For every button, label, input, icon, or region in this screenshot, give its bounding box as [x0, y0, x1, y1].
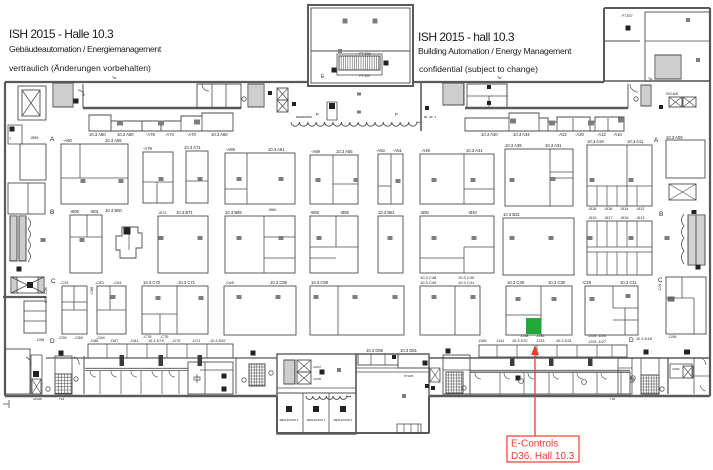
svg-text:-C83: -C83 [95, 280, 104, 285]
svg-text:REFLEXION 2: REFLEXION 2 [307, 418, 326, 422]
svg-text:A: A [654, 137, 659, 144]
svg-text:-A20: -A20 [575, 132, 585, 137]
svg-text:10.3 A80: 10.3 A80 [89, 132, 106, 137]
svg-text:A1007: A1007 [313, 365, 322, 369]
svg-text:-B17: -B17 [604, 215, 613, 220]
svg-text:-D86: -D86 [90, 338, 98, 343]
svg-text:10.3 B51: 10.3 B51 [378, 210, 395, 215]
svg-text:-B72: -B72 [158, 210, 167, 215]
svg-text:-D65: -D65 [478, 338, 486, 343]
svg-text:PT-E05: PT-E05 [404, 374, 414, 378]
svg-text:-D33: -D33 [536, 338, 544, 343]
svg-text:10.3 A09: 10.3 A09 [666, 135, 683, 140]
svg-text:10.3 B50: 10.3 B50 [105, 208, 122, 213]
svg-text:-A59: -A59 [311, 149, 321, 154]
svg-text:10.3 B71: 10.3 B71 [176, 210, 193, 215]
svg-text:-A60: -A60 [63, 138, 73, 143]
svg-text:vertraulich (Änderungen vorbeh: vertraulich (Änderungen vorbehalten) [9, 63, 151, 73]
svg-text:10.3 A31: 10.3 A31 [545, 143, 562, 148]
svg-text:-D38: -D38 [520, 333, 528, 338]
svg-text:-C81: -C81 [113, 280, 122, 285]
svg-text:10.3 C11: 10.3 C11 [620, 280, 637, 285]
svg-text:B: B [659, 211, 663, 218]
svg-text:P: P [316, 112, 319, 117]
svg-text:-C86: -C86 [90, 287, 94, 295]
svg-text:-C91: -C91 [60, 280, 69, 285]
svg-text:-D29 -D27: -D29 -D27 [588, 339, 606, 344]
svg-text:-B05: -B05 [70, 209, 80, 214]
svg-text:PT-E07: PT-E07 [359, 74, 370, 78]
svg-text:-A74: -A74 [165, 132, 175, 137]
svg-text:Tw: Tw [497, 76, 502, 80]
svg-text:-C90: -C90 [58, 335, 67, 340]
svg-text:-D41: -D41 [496, 338, 504, 343]
svg-text:10.3 C30: 10.3 C30 [548, 280, 566, 285]
svg-text:C: C [51, 278, 56, 285]
svg-text:Tw: Tw [112, 76, 117, 80]
svg-text:10.3 A39: 10.3 A39 [505, 143, 522, 148]
svg-text:P: P [395, 112, 398, 117]
svg-text:-B14: -B14 [620, 206, 629, 211]
svg-text:10.3 C38: 10.3 C38 [507, 280, 525, 285]
svg-text:-A69: -A69 [226, 147, 236, 152]
svg-text:10.3 C71: 10.3 C71 [178, 280, 196, 285]
svg-text:-B15: -B15 [620, 215, 629, 220]
svg-text:-A10: -A10 [613, 132, 623, 137]
svg-text:-D36: -D36 [536, 333, 544, 338]
svg-text:10.3 D31: 10.3 D31 [556, 338, 572, 343]
svg-text:REFLEXION 1: REFLEXION 1 [334, 418, 353, 422]
svg-text:Tw: Tw [648, 77, 653, 81]
svg-text:-C06: -C06 [658, 284, 662, 291]
svg-text:B: B [50, 209, 54, 216]
svg-text:A: A [50, 136, 55, 143]
svg-text:-A12: -A12 [597, 132, 607, 137]
svg-text:10.3 A19: 10.3 A19 [587, 139, 604, 144]
svg-text:-A22: -A22 [558, 132, 568, 137]
svg-text:10.3 A61: 10.3 A61 [268, 147, 285, 152]
svg-text:10.3 A55: 10.3 A55 [336, 149, 353, 154]
svg-text:A1098: A1098 [33, 397, 42, 401]
svg-text:-C68: -C68 [225, 280, 234, 285]
svg-text:PT-E02: PT-E02 [359, 52, 370, 56]
svg-text:-D98: -D98 [36, 338, 44, 342]
svg-text:-B01: -B01 [90, 209, 100, 214]
svg-text:-B95: -B95 [30, 135, 39, 140]
svg-text:10.3 D37: 10.3 D37 [512, 338, 528, 343]
svg-text:PT-E07: PT-E07 [622, 14, 633, 18]
svg-text:ISH 2015 - Halle 10.3: ISH 2015 - Halle 10.3 [9, 27, 114, 41]
svg-text:-C98 -C96: -C98 -C96 [44, 287, 48, 304]
svg-text:ISH 2015 - hall 10.3: ISH 2015 - hall 10.3 [418, 30, 515, 44]
svg-text:10.3 C70: 10.3 C70 [143, 280, 161, 285]
svg-text:-A49: -A49 [421, 148, 431, 153]
svg-text:-B13: -B13 [636, 215, 645, 220]
svg-text:D36, Hall 10.3: D36, Hall 10.3 [511, 451, 575, 462]
svg-text:-B60: -B60 [268, 207, 277, 212]
svg-text:T: T [9, 137, 11, 141]
svg-text:T02: T02 [610, 397, 616, 401]
svg-text:C: C [658, 277, 663, 284]
svg-text:-D28 -D26: -D28 -D26 [588, 333, 606, 338]
svg-text:10.3 A65: 10.3 A65 [105, 138, 122, 143]
svg-text:10.3 A11: 10.3 A11 [627, 139, 644, 144]
svg-text:10.3 A71: 10.3 A71 [184, 145, 201, 150]
svg-text:10.3 A60: 10.3 A60 [117, 132, 134, 137]
svg-text:-C88: -C88 [74, 335, 83, 340]
svg-text:D: D [629, 337, 634, 344]
svg-text:10.3 D18: 10.3 D18 [636, 336, 652, 341]
svg-text:-A79: -A79 [143, 146, 153, 151]
svg-text:D: D [50, 338, 55, 345]
svg-text:-A78: -A78 [146, 132, 156, 137]
svg-text:10.3 A34: 10.3 A34 [513, 132, 530, 137]
svg-text:10.3 B69: 10.3 B69 [225, 210, 242, 215]
svg-text:REFLEXION 3: REFLEXION 3 [280, 418, 299, 422]
svg-text:-D81: -D81 [130, 338, 138, 343]
svg-text:10.3 D56: 10.3 D56 [366, 348, 384, 353]
svg-text:10.3 B31: 10.3 B31 [503, 212, 520, 217]
svg-text:Building Automation / Energy M: Building Automation / Energy Management [418, 46, 572, 56]
svg-text:10.3 D67: 10.3 D67 [210, 338, 226, 343]
svg-text:-B16: -B16 [604, 206, 613, 211]
svg-text:10.3 D51: 10.3 D51 [400, 348, 418, 353]
svg-text:E: E [321, 74, 325, 80]
svg-text:-A70: -A70 [187, 132, 197, 137]
svg-text:-D75: -D75 [172, 338, 180, 343]
svg-text:Gebäudeautomation / Energieman: Gebäudeautomation / Energiemanagement [9, 44, 162, 54]
svg-text:-B18: -B18 [588, 206, 597, 211]
svg-text:A1005: A1005 [313, 377, 322, 381]
svg-text:10.3 C55: 10.3 C55 [270, 280, 288, 285]
svg-text:-B55: -B55 [340, 210, 350, 215]
svg-text:-A53: -A53 [376, 148, 386, 153]
svg-text:K03 A08: K03 A08 [666, 92, 678, 96]
svg-text:-D71: -D71 [192, 338, 200, 343]
svg-text:confidential (subject to chang: confidential (subject to change) [419, 64, 538, 74]
svg-text:E-Controls: E-Controls [511, 439, 558, 450]
svg-text:-B19: -B19 [588, 215, 597, 220]
svg-text:-C76: -C76 [160, 334, 168, 339]
svg-text:10.3 A41: 10.3 A41 [466, 148, 483, 153]
svg-text:-C29: -C29 [582, 280, 592, 285]
svg-text:A1099: A1099 [672, 367, 680, 371]
svg-text:10.3 A40: 10.3 A40 [481, 132, 498, 137]
svg-text:-B12: -B12 [636, 206, 645, 211]
svg-text:10.3 C59: 10.3 C59 [311, 280, 329, 285]
svg-text:-B59: -B59 [310, 210, 320, 215]
svg-text:-C78: -C78 [143, 334, 151, 339]
svg-text:10.3 C41: 10.3 C41 [458, 280, 475, 285]
svg-text:-A51: -A51 [393, 148, 403, 153]
svg-text:T04: T04 [59, 397, 65, 401]
svg-text:-D08: -D08 [668, 334, 676, 339]
svg-text:10.3 A66: 10.3 A66 [211, 132, 228, 137]
svg-text:10.3 C49: 10.3 C49 [420, 280, 437, 285]
svg-text:-B50: -B50 [420, 210, 430, 215]
svg-text:-D87: -D87 [110, 338, 118, 343]
svg-text:-B40: -B40 [468, 210, 478, 215]
